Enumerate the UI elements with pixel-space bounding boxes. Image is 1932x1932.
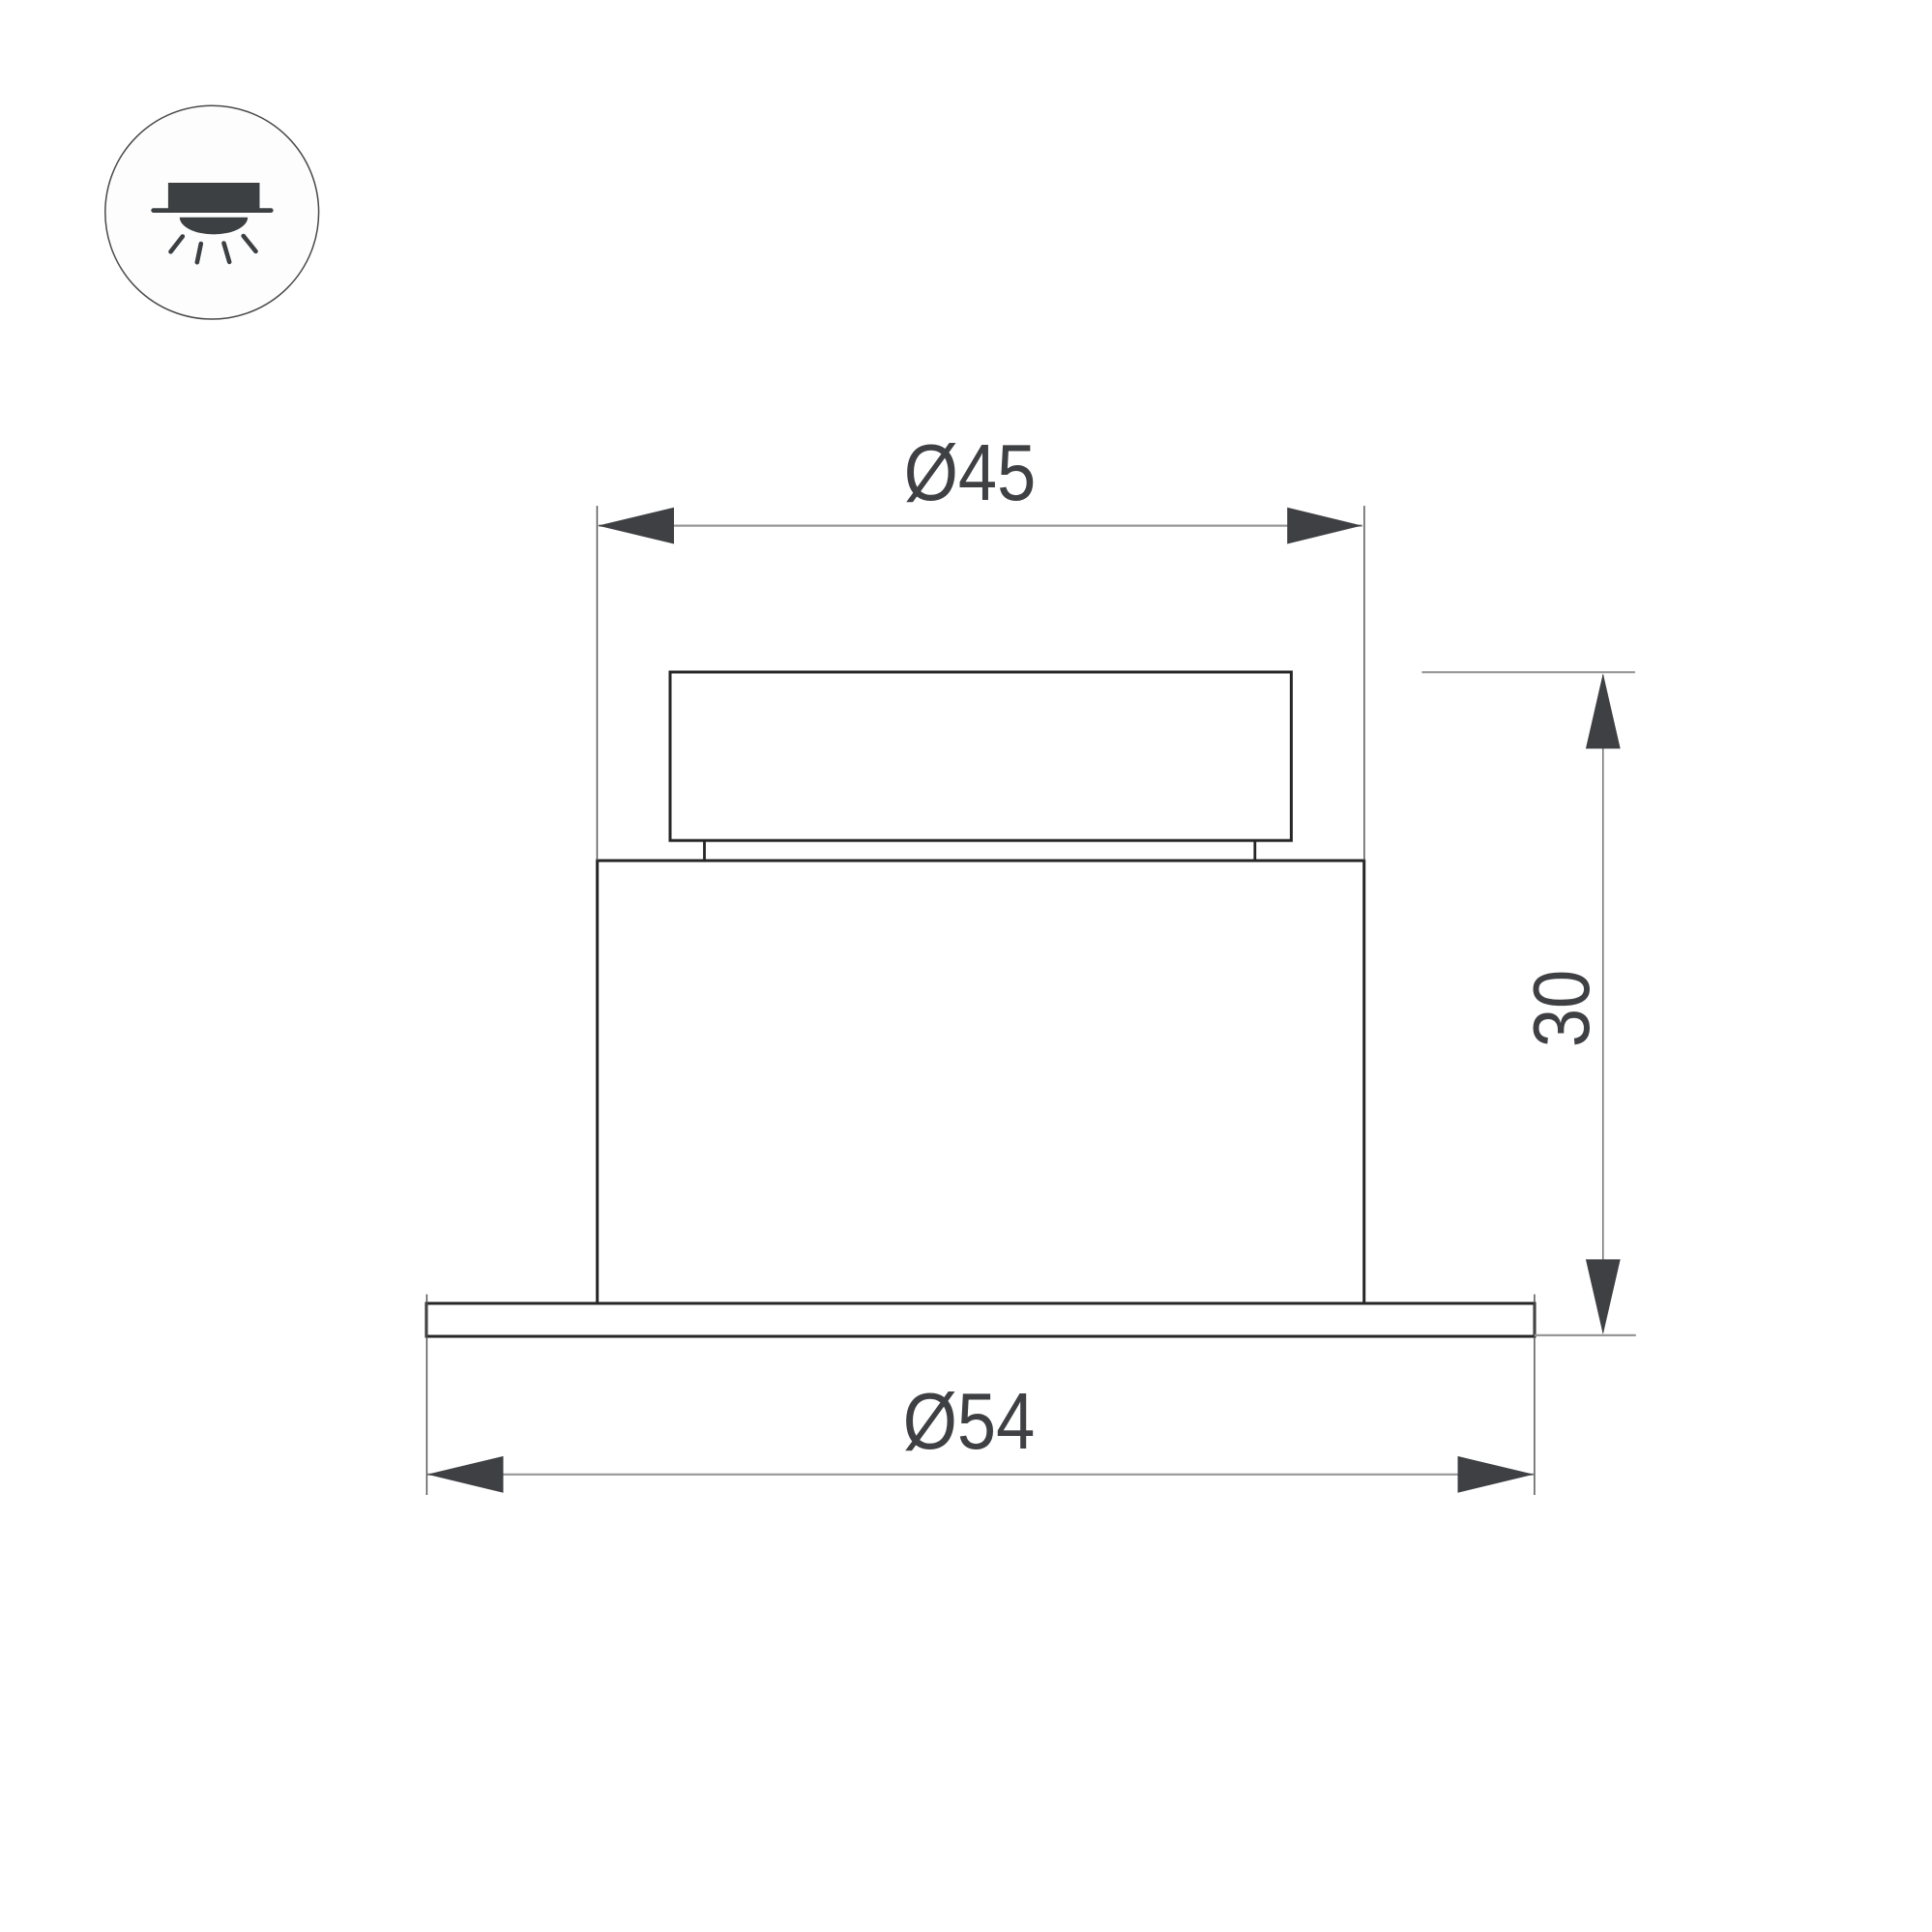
svg-text:30: 30 xyxy=(1517,970,1606,1047)
svg-text:Ø45: Ø45 xyxy=(904,428,1036,517)
svg-text:Ø54: Ø54 xyxy=(903,1377,1035,1466)
